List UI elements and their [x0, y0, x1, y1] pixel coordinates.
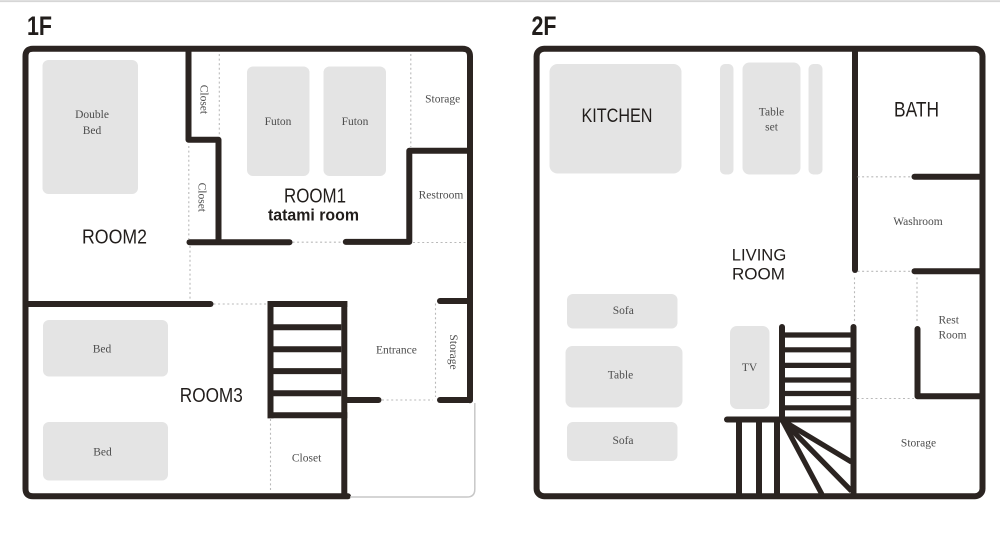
svg-text:Rest: Rest: [939, 315, 960, 327]
svg-text:Futon: Futon: [265, 116, 292, 128]
svg-text:Futon: Futon: [342, 116, 369, 128]
svg-text:Bed: Bed: [83, 125, 102, 137]
svg-text:Washroom: Washroom: [893, 216, 943, 228]
svg-text:KITCHEN: KITCHEN: [582, 106, 653, 127]
svg-text:ROOM: ROOM: [732, 266, 785, 284]
svg-text:Closet: Closet: [292, 453, 322, 465]
svg-text:Sofa: Sofa: [612, 435, 633, 447]
svg-text:Closet: Closet: [196, 183, 208, 213]
svg-text:Entrance: Entrance: [376, 345, 417, 357]
svg-text:Table: Table: [608, 370, 633, 382]
svg-text:tatami room: tatami room: [268, 205, 359, 224]
svg-text:1F: 1F: [27, 11, 52, 41]
svg-text:BATH: BATH: [894, 99, 939, 122]
svg-text:Double: Double: [75, 109, 109, 121]
svg-text:Bed: Bed: [93, 447, 112, 459]
svg-text:Storage: Storage: [901, 438, 936, 450]
svg-text:TV: TV: [742, 362, 758, 374]
svg-text:Storage: Storage: [447, 334, 459, 369]
svg-text:2F: 2F: [532, 11, 557, 41]
svg-text:ROOM3: ROOM3: [180, 385, 243, 407]
svg-text:Closet: Closet: [197, 85, 209, 115]
svg-text:set: set: [765, 122, 779, 134]
svg-text:Sofa: Sofa: [613, 305, 634, 317]
svg-text:Restroom: Restroom: [419, 190, 464, 202]
svg-text:Room: Room: [939, 329, 967, 341]
svg-text:Table: Table: [759, 107, 784, 119]
svg-text:ROOM2: ROOM2: [82, 226, 147, 248]
svg-text:Bed: Bed: [93, 344, 112, 356]
svg-text:ROOM1: ROOM1: [284, 185, 346, 207]
svg-text:LIVING: LIVING: [732, 247, 787, 265]
svg-text:Storage: Storage: [425, 94, 460, 106]
